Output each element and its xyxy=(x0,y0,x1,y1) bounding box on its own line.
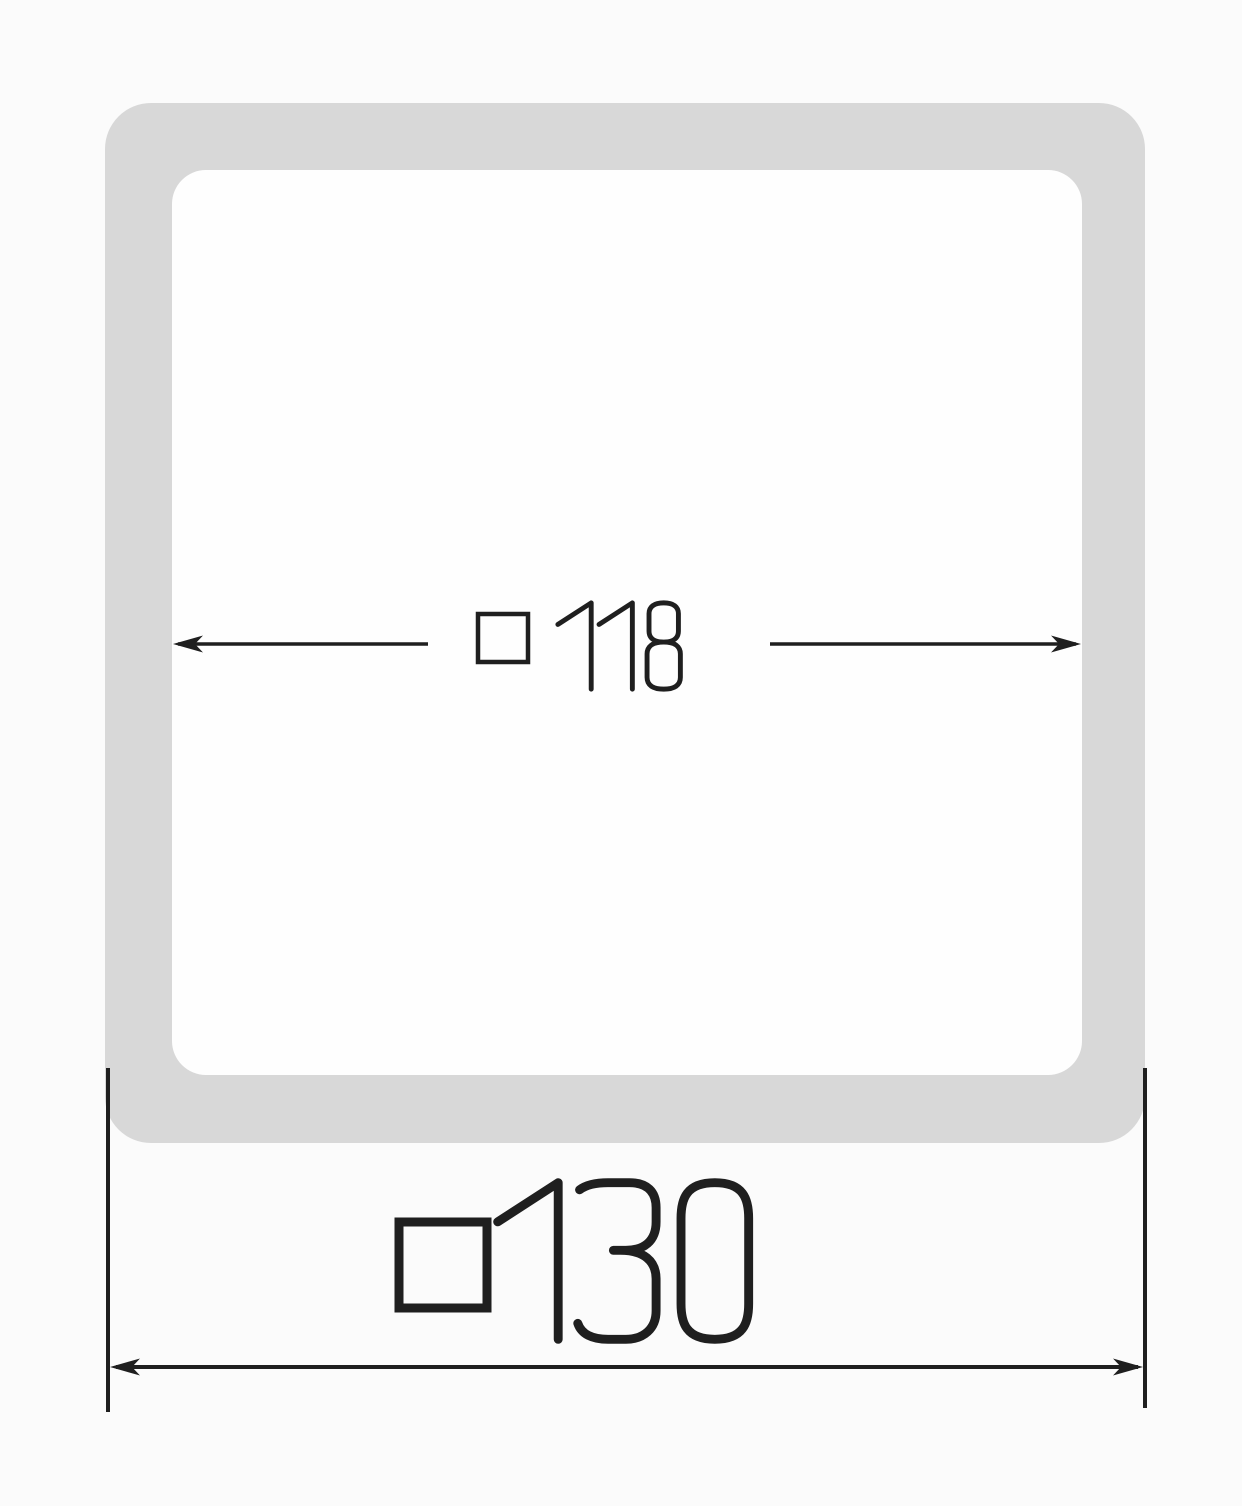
digit-1 xyxy=(498,1183,559,1340)
outer-dim-square-symbol-icon xyxy=(399,1222,487,1308)
outer-dim-value xyxy=(498,1183,749,1340)
technical-drawing xyxy=(0,0,1242,1506)
digit-0 xyxy=(681,1183,749,1340)
drawing-canvas xyxy=(0,0,1242,1506)
profile-frame-inner-cutout xyxy=(172,170,1082,1075)
digit-3 xyxy=(578,1183,656,1340)
